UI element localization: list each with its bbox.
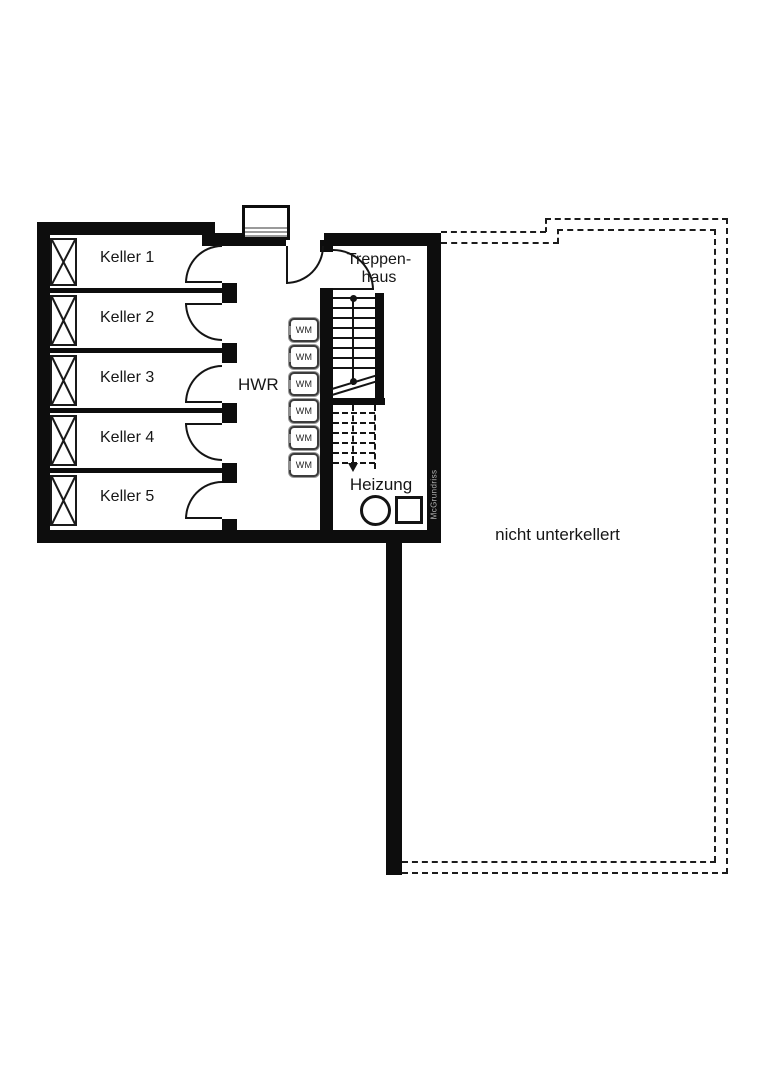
window-box-keller-1 — [50, 238, 77, 286]
room-label-treppenhaus-line1: Treppen- — [333, 251, 425, 269]
stair-tread-line — [333, 367, 375, 369]
dashed-line — [545, 218, 728, 220]
door-arc-entrance — [286, 246, 324, 284]
stair-tread-line — [333, 317, 375, 319]
basement-floor-plan: WM WM WM WM WM WM Keller 1 Keller 2 Kell… — [0, 0, 763, 1080]
partition-keller-4-5 — [50, 468, 222, 473]
tank-square-symbol — [395, 496, 423, 524]
x-cross-icon — [52, 240, 75, 284]
room-label-keller-3: Keller 3 — [100, 369, 154, 387]
room-label-treppenhaus-line2: haus — [333, 269, 425, 287]
dashed-line — [441, 242, 559, 244]
stair-tread-dashed — [333, 442, 375, 444]
door-arc-keller-2 — [185, 303, 222, 341]
room-label-keller-5: Keller 5 — [100, 488, 154, 506]
dashed-line — [726, 218, 728, 874]
room-label-keller-2: Keller 2 — [100, 309, 154, 327]
step-line — [245, 231, 287, 233]
room-label-heizung: Heizung — [345, 475, 417, 495]
door-arc-keller-5 — [185, 481, 222, 519]
wm-label: WM — [296, 406, 313, 416]
partition-keller-2-3 — [50, 348, 222, 353]
window-box-keller-5 — [50, 475, 77, 526]
dashed-line — [402, 861, 716, 863]
jamb-stub-1 — [222, 283, 237, 303]
wall-corridor-east — [320, 288, 333, 543]
jamb-stub-3 — [222, 403, 237, 423]
wall-left — [37, 222, 50, 543]
stair-tread-line — [333, 337, 375, 339]
x-cross-icon — [52, 297, 75, 344]
door-arc-keller-4 — [185, 423, 222, 461]
door-arc-keller-1 — [185, 245, 222, 283]
x-cross-icon — [52, 477, 75, 524]
stair-tread-line — [333, 347, 375, 349]
wm-label: WM — [296, 433, 313, 443]
stair-tread-line — [333, 307, 375, 309]
wall-top-right-segment-b — [324, 233, 441, 246]
wall-bottom — [37, 530, 441, 543]
stair-tread-dashed — [333, 452, 375, 454]
partition-keller-1-2 — [50, 288, 222, 293]
stair-tread-dashed — [333, 432, 375, 434]
dashed-line — [545, 219, 547, 232]
jamb-stub-bottom — [222, 519, 237, 530]
jamb-stub-top — [222, 235, 237, 246]
stair-tread-line — [333, 357, 375, 359]
door-arc-keller-3 — [185, 365, 222, 403]
room-label-hwr: HWR — [238, 375, 279, 395]
washing-machine: WM — [289, 453, 319, 477]
window-box-keller-2 — [50, 295, 77, 346]
room-label-keller-4: Keller 4 — [100, 429, 154, 447]
washing-machine: WM — [289, 426, 319, 450]
stair-direction-arrow-icon — [348, 463, 358, 472]
step-line — [245, 235, 287, 237]
stair-dashed-edge-line — [374, 405, 376, 469]
washing-machine: WM — [289, 372, 319, 396]
entrance-steps-block — [242, 205, 290, 240]
wall-stair-east — [375, 293, 384, 405]
jamb-stub-2 — [222, 343, 237, 363]
annotation-nicht-unterkellert: nicht unterkellert — [455, 525, 660, 545]
wm-label: WM — [296, 379, 313, 389]
step-line — [245, 227, 287, 229]
wall-stub-below-building — [386, 543, 402, 875]
stair-dashed-center-line — [352, 405, 354, 462]
x-cross-icon — [52, 417, 75, 464]
dashed-line — [557, 229, 716, 231]
wall-top-left-segment — [37, 222, 215, 235]
stair-walking-line — [352, 297, 354, 385]
stair-tread-dashed — [333, 422, 375, 424]
wm-label: WM — [296, 352, 313, 362]
wm-label: WM — [296, 460, 313, 470]
x-cross-icon — [52, 357, 75, 404]
stair-tread-line — [333, 327, 375, 329]
washing-machine: WM — [289, 345, 319, 369]
boiler-circle-symbol — [360, 495, 391, 526]
dashed-line — [402, 872, 728, 874]
dashed-line — [714, 229, 716, 862]
partition-keller-3-4 — [50, 408, 222, 413]
washing-machine: WM — [289, 318, 319, 342]
wall-stair-bottom-bar — [333, 398, 385, 405]
window-box-keller-3 — [50, 355, 77, 406]
dashed-line — [441, 231, 546, 233]
room-label-keller-1: Keller 1 — [100, 249, 154, 267]
window-box-keller-4 — [50, 415, 77, 466]
watermark-text: McGrundriss — [430, 464, 441, 526]
stair-tread-dashed — [333, 412, 375, 414]
walking-line-start-dot — [350, 295, 357, 302]
washing-machine: WM — [289, 399, 319, 423]
wm-label: WM — [296, 325, 313, 335]
dashed-line — [557, 229, 559, 243]
jamb-stub-4 — [222, 463, 237, 483]
